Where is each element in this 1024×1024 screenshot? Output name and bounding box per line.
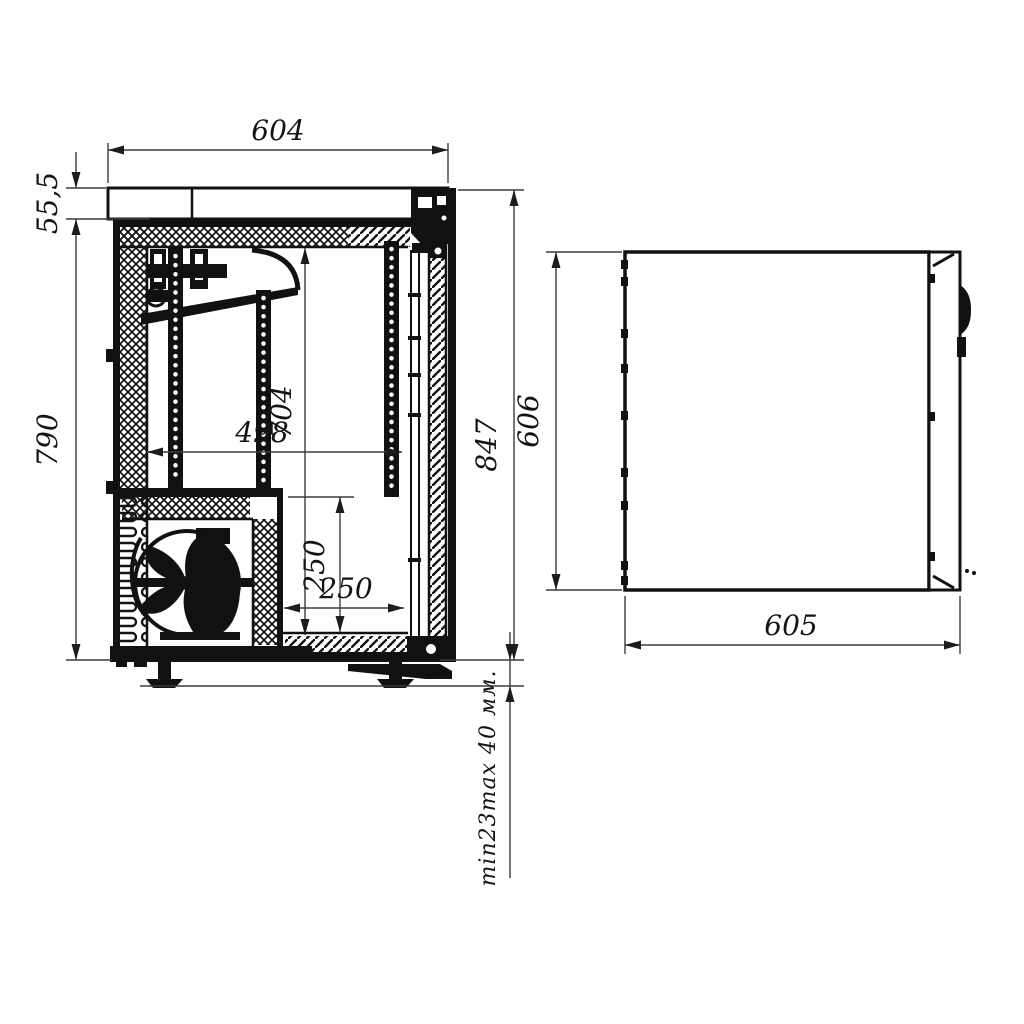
- dim-interior-depth: 498: [234, 416, 288, 449]
- dim-body-height: 790: [31, 413, 64, 466]
- dim-feet-range: min23max 40 мм.: [476, 670, 501, 887]
- dim-worktop-height: 55,5: [31, 172, 64, 234]
- left-foot: [158, 662, 171, 679]
- dim-overall-height: 847: [470, 418, 503, 472]
- plan-body: [625, 252, 929, 590]
- refrigerator-dimension-drawing: 604 55,5 790 847 704: [0, 0, 1024, 1024]
- dim-plan-depth: 606: [512, 394, 545, 447]
- wall-stud: [106, 349, 113, 362]
- dim-plan-width: 605: [764, 609, 817, 642]
- mount-bar: [136, 578, 252, 587]
- dim-machine-bay-depth: 250: [318, 572, 372, 605]
- dim-top-width: 604: [251, 114, 304, 147]
- worktop: [108, 188, 448, 219]
- wall-stud: [106, 481, 113, 494]
